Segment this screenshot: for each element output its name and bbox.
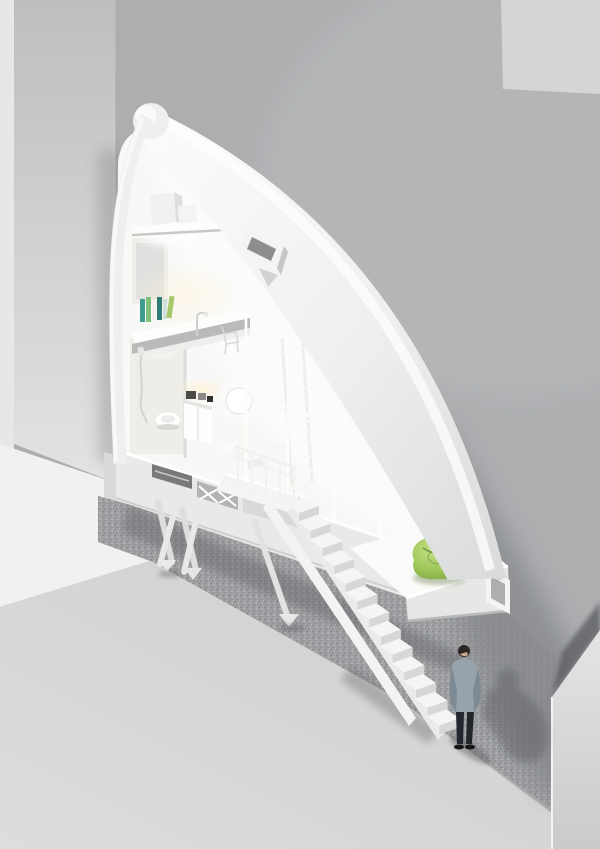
toilet bbox=[156, 413, 180, 431]
kitchen-cabinet bbox=[184, 400, 212, 444]
paper-lantern bbox=[226, 388, 252, 414]
render-canvas bbox=[0, 0, 600, 849]
topright-wall-panel bbox=[501, 0, 600, 94]
pedestrian-shoe-right bbox=[465, 745, 475, 750]
left-edge-strip bbox=[0, 0, 14, 452]
pedestrian-shoe-left bbox=[454, 745, 464, 750]
